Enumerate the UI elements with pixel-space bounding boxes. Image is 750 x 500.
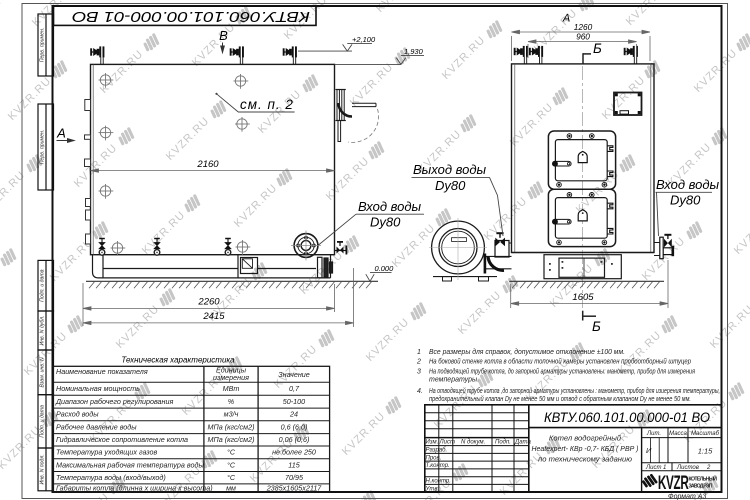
svg-text:Температура воды (вход/выход): Температура воды (вход/выход) [56,473,166,482]
svg-text:И: И [646,446,652,455]
svg-text:Изм.: Изм. [426,440,439,446]
svg-text:Разраб.: Разраб. [426,448,448,454]
svg-text:70/95: 70/95 [285,473,304,482]
svg-text:температуры.: температуры. [429,377,479,384]
svg-text:Листов: Листов [676,465,699,471]
svg-text:Рабочее давление воды: Рабочее давление воды [56,423,137,432]
svg-text:1: 1 [663,465,666,471]
svg-text:24: 24 [289,410,298,419]
svg-text:Лист: Лист [645,465,661,471]
svg-text:KVZR: KVZR [658,473,690,493]
svg-text:Вход воды: Вход воды [656,177,720,192]
svg-text:Выход воды: Выход воды [413,162,487,177]
svg-text:Лист: Лист [439,440,455,446]
svg-text:Максимальная рабочая температу: Максимальная рабочая температура воды [56,461,204,470]
svg-text:2260: 2260 [197,297,220,308]
svg-text:Дата: Дата [514,440,531,446]
svg-text:КВТУ.060.101.00.000-01 ВО: КВТУ.060.101.00.000-01 ВО [544,409,710,425]
svg-text:0,7: 0,7 [289,384,300,393]
svg-text:мм: мм [226,484,236,493]
svg-text:Б: Б [592,319,601,334]
svg-text:Перв. примен.: Перв. примен. [40,130,46,164]
svg-text:На подводящей трубе котла, д: На подводящей трубе котла, до запорной а… [429,368,695,376]
svg-text:115: 115 [288,461,300,470]
svg-text:Подп.: Подп. [495,440,511,446]
svg-text:Габариты котла (длинна х ширин: Габариты котла (длинна х ширина х высота… [56,484,213,493]
svg-text:Номинальная мощность: Номинальная мощность [56,384,140,393]
svg-text:А: А [56,126,66,141]
svg-text:Диапазон рабочего регулировани: Диапазон рабочего регулирования [55,397,174,406]
svg-text:Т.контр.: Т.контр. [426,463,450,469]
svg-text:предохранительный клапан Dу н: предохранительный клапан Dу не менее 50 … [429,395,691,403]
svg-text:1: 1 [417,349,421,356]
svg-text:Перв. примен.: Перв. примен. [40,28,46,62]
svg-text:Н.контр.: Н.контр. [426,479,451,485]
svg-text:Расход воды: Расход воды [56,410,99,419]
svg-text:960: 960 [576,32,590,42]
svg-text:1,930: 1,930 [404,47,424,56]
svg-text:Значение: Значение [278,370,310,379]
svg-text:Формат А3: Формат А3 [668,494,706,500]
svg-text:Температура уходящих газов: Температура уходящих газов [56,448,158,457]
svg-text:На отводящей трубе котла ,до з: На отводящей трубе котла ,до запорной ар… [429,387,720,395]
svg-text:1260: 1260 [574,22,593,32]
svg-text:не более 250: не более 250 [272,448,316,457]
svg-text:0,6 (6,0): 0,6 (6,0) [281,423,308,432]
svg-text:по техническому заданию: по техническому заданию [538,455,632,464]
svg-text:Все размеры для справок, допус: Все размеры для справок, допустимое откл… [429,348,625,356]
svg-text:КОТЕЛЬНЫЙ: КОТЕЛЬНЫЙ [689,475,718,483]
svg-text:2: 2 [706,465,711,471]
svg-text:Масштаб: Масштаб [691,431,720,437]
svg-text:Утв.: Утв. [425,486,440,492]
svg-text:МВт: МВт [223,384,240,393]
svg-text:1605: 1605 [572,292,594,303]
svg-text:0,06 (0,6): 0,06 (0,6) [279,435,310,444]
svg-text:N докум.: N докум. [461,440,485,446]
svg-text:Гидравлическое сопротивление к: Гидравлическое сопротивление котла [56,435,188,444]
svg-text:B: B [219,28,228,43]
svg-text:4.: 4. [417,388,423,395]
svg-text:Dy80: Dy80 [370,215,401,230]
svg-text:Dy80: Dy80 [435,178,466,193]
svg-text:Инв. N подл.: Инв. N подл. [40,454,46,484]
svg-text:Масса: Масса [669,431,687,437]
svg-text:Техническая характеристика: Техническая характеристика [121,356,235,365]
svg-text:измерения: измерения [213,373,249,382]
svg-text:Инв. N дубл.: Инв. N дубл. [40,315,46,345]
svg-text:50-100: 50-100 [283,397,305,406]
svg-text:1:15: 1:15 [698,447,713,456]
svg-text:°С: °С [227,448,236,457]
svg-text:МПа (кгс/см2): МПа (кгс/см2) [208,435,255,444]
svg-text:ЗАВОД РЭП: ЗАВОД РЭП [689,484,713,490]
svg-text:А: А [562,12,570,24]
svg-text:Подп. и дата: Подп. и дата [40,405,46,438]
svg-text:Пров.: Пров. [426,455,442,461]
svg-text:Вход воды: Вход воды [358,199,422,214]
svg-text:КВТУ.060.101.00.000-01 ВО: КВТУ.060.101.00.000-01 ВО [72,8,310,24]
svg-text:МПа (кгс/см2): МПа (кгс/см2) [208,423,255,432]
svg-text:Лит.: Лит. [646,431,661,437]
svg-text:Взам. инв. N: Взам. инв. N [40,357,46,387]
svg-text:Котел водогрейный: Котел водогрейный [549,434,622,443]
svg-text:На боковой стенке котла в обла: На боковой стенке котла в области топочн… [429,358,691,366]
svg-text:°С: °С [227,473,236,482]
svg-text:2160: 2160 [196,159,219,170]
svg-text:+2,100: +2,100 [352,35,376,44]
svg-text:Heatexpert- КВр -0,7- КБД ( РВ: Heatexpert- КВр -0,7- КБД ( РВР ) [532,444,639,453]
svg-text:Наименование показателя: Наименование показателя [56,367,148,376]
svg-text:°С: °С [227,461,236,470]
svg-text:%: % [228,397,235,406]
svg-text:2415: 2415 [202,311,225,322]
svg-text:2385х1605х2117: 2385х1605х2117 [266,484,323,493]
svg-text:Подп. и дата: Подп. и дата [40,269,46,302]
svg-text:0.000: 0.000 [375,264,395,273]
svg-text:2: 2 [416,359,421,366]
svg-text:Б: Б [593,41,602,56]
svg-text:Dy80: Dy80 [670,193,701,208]
svg-text:м3/ч: м3/ч [224,410,239,419]
svg-text:см. п. 2: см. п. 2 [240,97,294,112]
svg-text:3: 3 [417,369,421,376]
